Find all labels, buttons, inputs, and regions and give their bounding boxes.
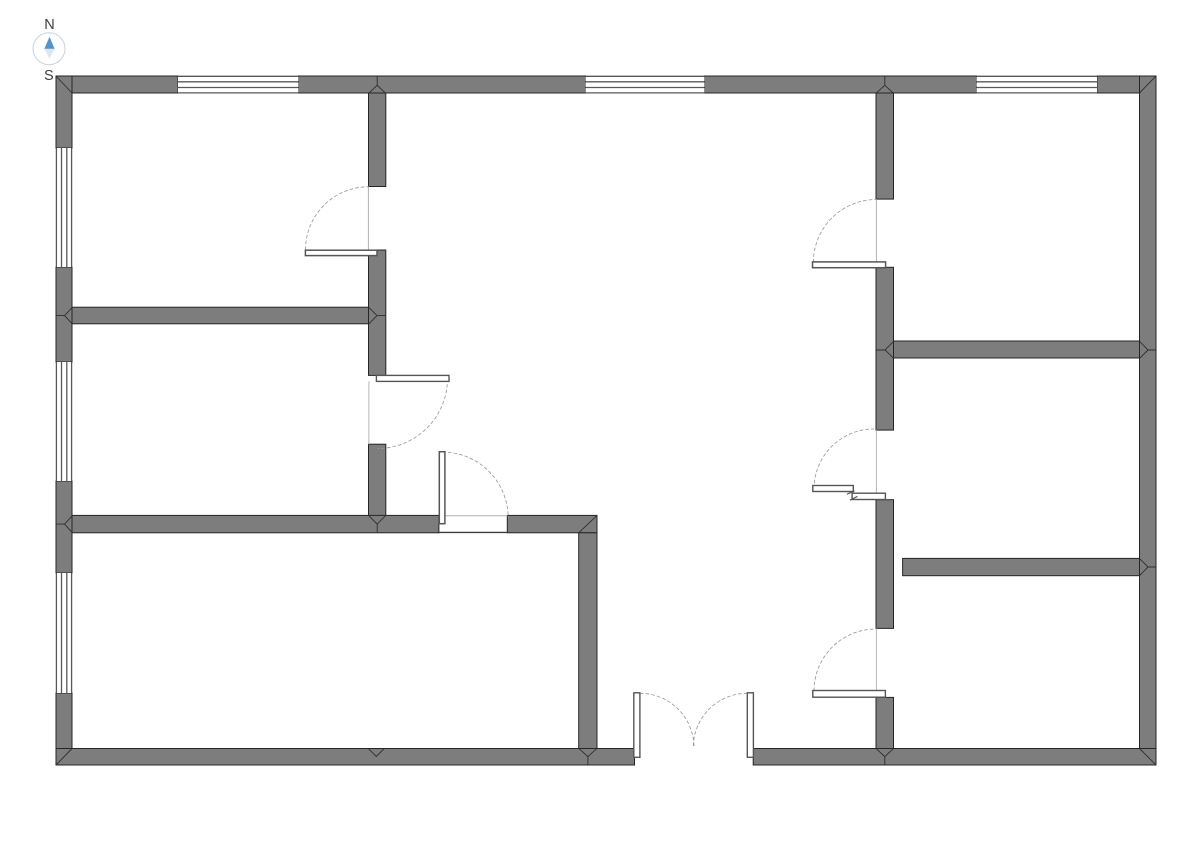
svg-text:N: N: [44, 17, 54, 33]
svg-text:S: S: [44, 68, 54, 84]
